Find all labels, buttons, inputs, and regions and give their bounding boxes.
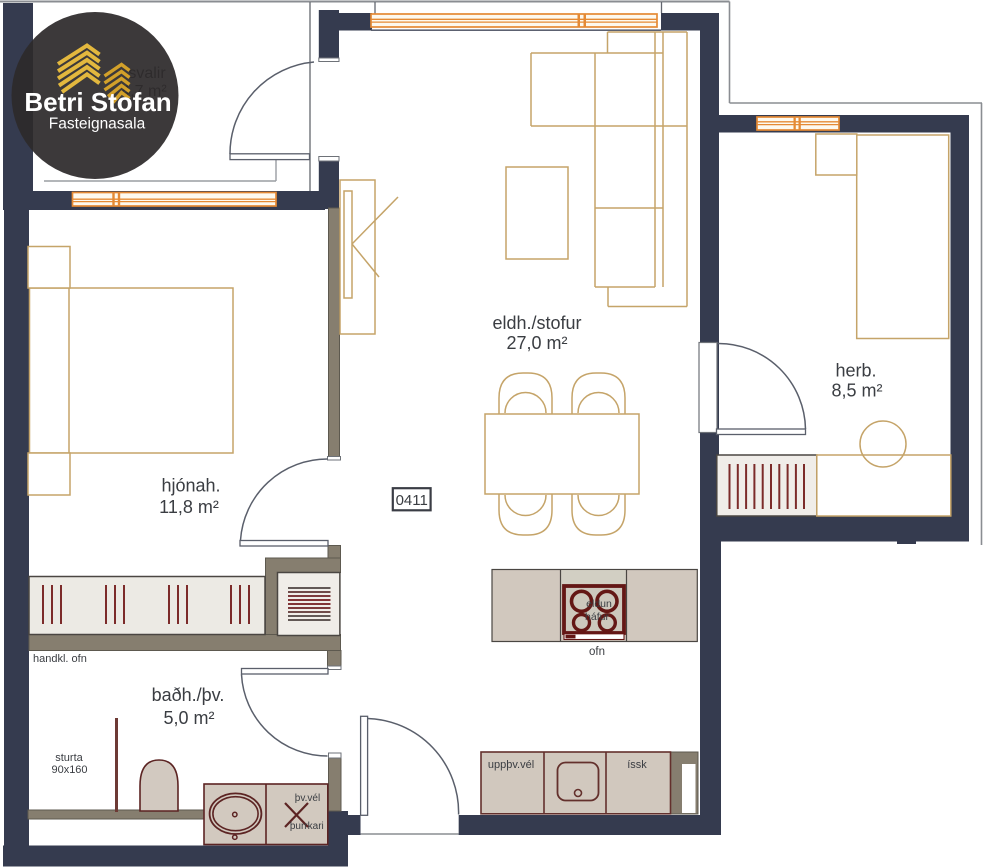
- svg-text:Betri Stofan: Betri Stofan: [24, 87, 171, 117]
- svg-text:5,0 m²: 5,0 m²: [163, 708, 214, 728]
- svg-text:eldh./stofur: eldh./stofur: [492, 313, 581, 333]
- svg-text:ofn: ofn: [589, 646, 605, 658]
- svg-text:hjónah.: hjónah.: [161, 476, 220, 496]
- svg-text:þurrkari: þurrkari: [290, 821, 324, 832]
- svg-text:baðh./þv.: baðh./þv.: [152, 685, 225, 705]
- svg-text:handkl. ofn: handkl. ofn: [33, 653, 87, 665]
- svg-text:eldun: eldun: [586, 598, 612, 610]
- svg-text:þv.vél: þv.vél: [295, 793, 320, 804]
- svg-text:0411: 0411: [396, 492, 428, 509]
- svg-text:Fasteignasala: Fasteignasala: [49, 116, 146, 133]
- svg-text:8,5 m²: 8,5 m²: [831, 381, 882, 401]
- svg-text:háfur: háfur: [585, 611, 609, 623]
- svg-text:11,8 m²: 11,8 m²: [159, 497, 219, 517]
- svg-text:27,0 m²: 27,0 m²: [506, 333, 567, 353]
- svg-text:sturta: sturta: [55, 752, 83, 764]
- svg-text:herb.: herb.: [835, 361, 876, 381]
- svg-text:uppþv.vél: uppþv.vél: [488, 759, 534, 771]
- svg-text:90x160: 90x160: [51, 764, 87, 776]
- svg-text:íssk: íssk: [627, 759, 647, 771]
